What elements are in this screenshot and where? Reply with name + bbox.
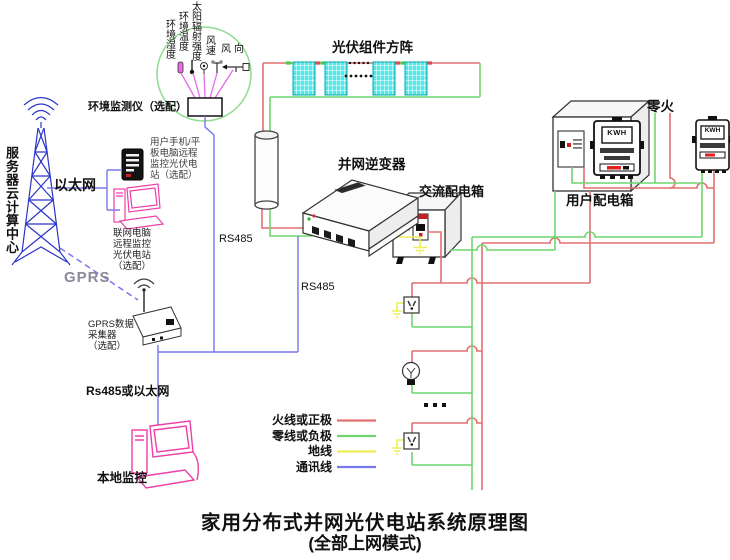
pv-panel [373, 62, 395, 95]
sensor-leads [181, 70, 233, 98]
gprs-label: GPRS [64, 269, 111, 286]
remote-computer-icon [114, 184, 163, 229]
gprs-router-icon [133, 279, 181, 345]
pv-panel-array [293, 62, 427, 95]
legend-label-comm: 通讯线 [240, 461, 332, 475]
sensor-label-temperature: 环境温度 [176, 11, 188, 51]
sensor-label-wind-speed: 风速 [203, 35, 215, 55]
dc-surge-protector-cylinder [255, 131, 278, 209]
thermometer-icon [190, 60, 194, 74]
gprs-collector-note: GPRS数据采集器 （选配） [88, 319, 134, 352]
ac-box-label: 交流配电箱 [419, 185, 484, 200]
kwh-meter-grid [692, 116, 730, 173]
diagram-subtitle: (全部上网模式) [0, 534, 730, 554]
legend-label-live: 火线或正极 [240, 414, 332, 428]
sensor-label-radiation: 太阳辐射强度 [189, 1, 201, 61]
socket-icon-2 [404, 433, 419, 449]
pv-ellipsis-dots [345, 62, 373, 78]
pv-panel [405, 62, 427, 95]
rs485-label-1: RS485 [219, 233, 253, 246]
humidity-sensor-icon [178, 62, 183, 73]
phone-note: 用户手机/平板电脑远程 监控光伏电站（选配） [150, 137, 200, 181]
sensor-label-humidity: 环境湿度 [163, 19, 175, 59]
wind-vane-icon [222, 64, 249, 73]
legend-swatches [337, 421, 376, 468]
anemometer-icon [211, 60, 223, 73]
rs485-label-2: RS485 [301, 281, 335, 294]
bulb-icon [403, 363, 420, 386]
branch-ellipsis-dots [424, 403, 446, 407]
kwh-meter-pv [590, 117, 644, 179]
local-monitor-label: 本地监控 [97, 471, 147, 485]
pv-panel [293, 62, 315, 95]
environment-monitor-box [188, 98, 222, 116]
pv-panel [325, 62, 347, 95]
server-cloud-center-label: 服务器云计算中心 [3, 146, 18, 254]
monitor-rs485-line [205, 116, 214, 352]
sensor-label-wind-direction: 风向 [221, 44, 247, 56]
sensor-icons [178, 60, 249, 74]
ground-wires [370, 237, 427, 454]
pc-note: 联网电脑远程监控 光伏电站（选配） [113, 228, 151, 272]
mobile-phone-icon [122, 149, 143, 180]
pv-array-title: 光伏组件方阵 [332, 40, 413, 56]
environment-monitor-label: 环境监测仪（选配） [88, 101, 186, 114]
inverter-label: 并网逆变器 [338, 157, 406, 173]
schematic-page: 环境湿度 环境温度 太阳辐射强度 风速 风向 环境监测仪（选配） 服务器云计算中… [0, 0, 730, 560]
zero-fire-label: 零火 [647, 99, 674, 115]
diagram-title: 家用分布式并网光伏电站系统原理图 [0, 512, 730, 534]
radiation-sensor-icon [201, 63, 208, 75]
legend-label-ground: 地线 [240, 445, 332, 459]
meter2-display: KWH [701, 127, 724, 134]
rs485-or-ethernet-label: Rs485或以太网 [86, 385, 169, 399]
legend-label-neutral: 零线或负极 [240, 430, 332, 444]
ethernet-label: 以太网 [54, 177, 96, 193]
user-box-label: 用户配电箱 [566, 193, 634, 209]
user-breaker-icon [558, 131, 584, 167]
socket-icon-1 [404, 297, 419, 313]
radio-waves-icon [24, 98, 58, 121]
meter1-display: KWH [602, 129, 632, 138]
